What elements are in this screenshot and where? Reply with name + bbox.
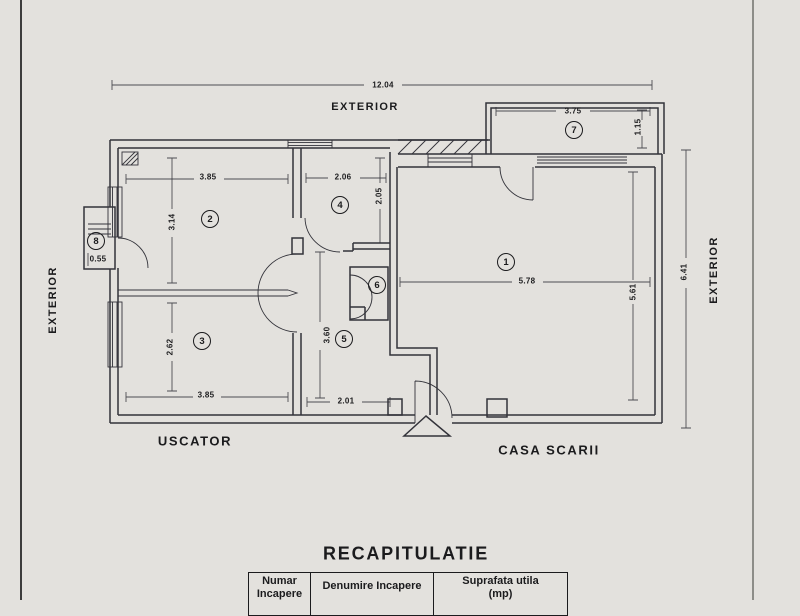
exterior-label-right: EXTERIOR (708, 236, 720, 303)
dim-room7-height: 1.15 (634, 119, 643, 136)
dim-room4-height: 2.05 (375, 188, 384, 205)
room-number-1: 1 (497, 253, 515, 271)
dim-total-height: 6.41 (680, 264, 689, 281)
recap-col-denumire: Denumire Incapere (311, 573, 434, 616)
exterior-label-top: EXTERIOR (331, 101, 398, 113)
casa-scarii-label: CASA SCARII (498, 443, 600, 458)
doors (118, 167, 533, 423)
recap-header-row: Numar Incapere Denumire Incapere Suprafa… (249, 573, 568, 616)
recap-col-suprafata: Suprafata utila (mp) (434, 573, 568, 616)
exterior-label-left: EXTERIOR (47, 266, 59, 333)
dim-room3-width: 3.85 (198, 391, 215, 400)
floor-plan-drawing (0, 0, 800, 600)
dim-room1-height: 5.61 (629, 284, 638, 301)
room-number-5: 5 (335, 330, 353, 348)
dim-room2-width: 3.85 (200, 173, 217, 182)
dim-room8-width: 0.55 (90, 255, 107, 264)
recap-col-suprafata-line1: Suprafata utila (462, 575, 538, 587)
scanned-floor-plan-page: EXTERIOR EXTERIOR EXTERIOR 12.04 6.41 3.… (0, 0, 800, 600)
room-number-2: 2 (201, 210, 219, 228)
dim-room1-width: 5.78 (519, 277, 536, 286)
recap-col-numar-line2: Incapere (250, 588, 309, 601)
recap-table: Numar Incapere Denumire Incapere Suprafa… (248, 572, 568, 616)
recap-title: RECAPITULATIE (323, 544, 489, 565)
room-number-3: 3 (193, 332, 211, 350)
dim-total-width: 12.04 (372, 81, 394, 90)
dim-room7-width: 3.75 (565, 107, 582, 116)
recap-col-numar: Numar Incapere (249, 573, 311, 616)
windows (88, 140, 627, 367)
recap-col-suprafata-line2: (mp) (435, 588, 566, 601)
dim-room4-width: 2.06 (335, 173, 352, 182)
dim-room3-height: 2.62 (166, 339, 175, 356)
uscator-label: USCATOR (158, 434, 232, 449)
dim-room5-height: 3.60 (323, 327, 332, 344)
recap-col-numar-line1: Numar (262, 575, 297, 587)
room-number-7: 7 (565, 121, 583, 139)
room-number-4: 4 (331, 196, 349, 214)
recap-col-denumire-label: Denumire Incapere (322, 580, 421, 593)
dim-room2-height: 3.14 (168, 214, 177, 231)
dim-room5-width: 2.01 (338, 397, 355, 406)
room-number-8: 8 (87, 232, 105, 250)
entrance-triangle (404, 416, 450, 436)
room-number-6: 6 (368, 276, 386, 294)
